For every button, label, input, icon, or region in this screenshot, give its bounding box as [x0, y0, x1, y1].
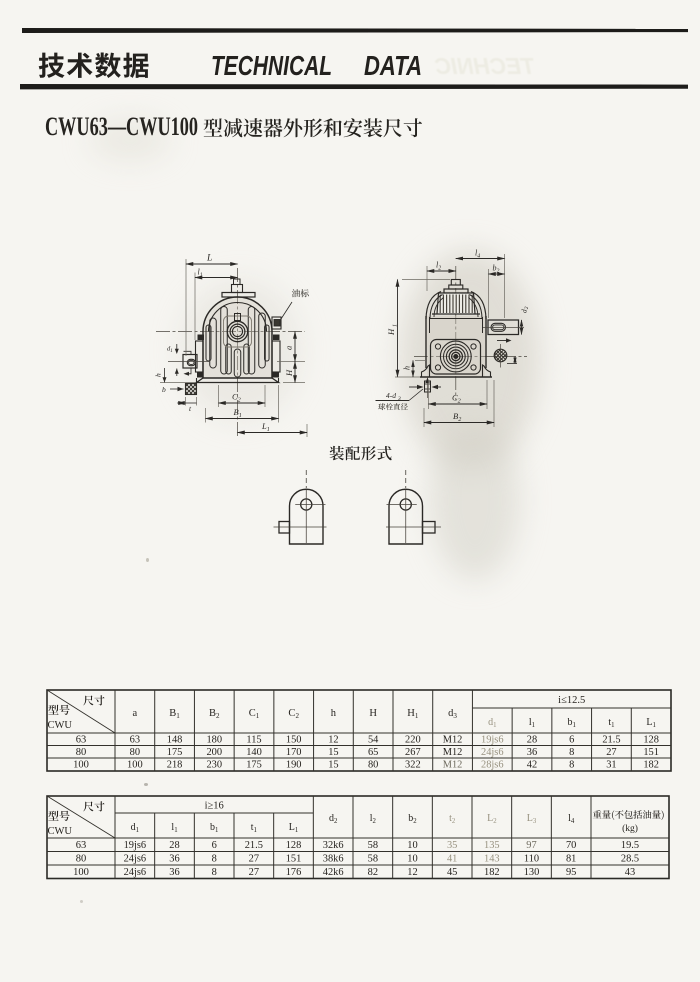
- svg-text:3: 3: [397, 396, 401, 402]
- svg-text:B2: B2: [453, 411, 461, 423]
- svg-text:1: 1: [393, 324, 399, 327]
- svg-text:100: 100: [73, 867, 89, 878]
- svg-text:54: 54: [368, 735, 379, 746]
- svg-text:230: 230: [206, 760, 222, 771]
- svg-text:182: 182: [643, 760, 659, 771]
- svg-text:28js6: 28js6: [481, 760, 504, 771]
- svg-text:148: 148: [167, 735, 183, 746]
- svg-text:151: 151: [643, 747, 659, 758]
- svg-text:h: h: [331, 708, 337, 719]
- svg-text:6: 6: [569, 735, 574, 746]
- svg-text:36: 36: [527, 747, 537, 758]
- svg-text:267: 267: [405, 747, 421, 758]
- svg-text:97: 97: [526, 840, 536, 851]
- svg-text:36: 36: [169, 867, 179, 878]
- svg-text:80: 80: [76, 747, 87, 758]
- svg-text:19js6: 19js6: [124, 840, 147, 851]
- svg-text:24js6: 24js6: [124, 854, 147, 865]
- svg-text:d2: d2: [329, 813, 338, 825]
- svg-text:35: 35: [447, 840, 457, 851]
- svg-text:C2: C2: [288, 708, 299, 720]
- svg-text:19js6: 19js6: [481, 735, 504, 746]
- svg-text:140: 140: [246, 747, 262, 758]
- svg-text:a: a: [133, 708, 138, 719]
- svg-text:M12: M12: [443, 735, 463, 746]
- svg-text:4-d: 4-d: [386, 391, 396, 400]
- svg-text:L1: L1: [646, 717, 656, 729]
- svg-text:82: 82: [368, 867, 378, 878]
- svg-text:H1: H1: [407, 708, 419, 720]
- svg-text:8: 8: [212, 867, 217, 878]
- svg-text:63: 63: [76, 735, 87, 746]
- svg-text:28: 28: [527, 735, 537, 746]
- svg-text:i≥16: i≥16: [205, 801, 224, 812]
- svg-text:190: 190: [286, 760, 302, 771]
- svg-text:12: 12: [407, 867, 417, 878]
- svg-text:21.5: 21.5: [245, 840, 263, 851]
- svg-text:L1: L1: [289, 822, 299, 834]
- svg-text:32k6: 32k6: [323, 840, 344, 851]
- svg-text:110: 110: [524, 854, 539, 865]
- svg-text:H: H: [386, 328, 396, 336]
- svg-text:220: 220: [405, 735, 421, 746]
- svg-text:10: 10: [407, 854, 417, 865]
- svg-text:l4: l4: [568, 813, 575, 825]
- svg-text:L1: L1: [261, 421, 270, 433]
- svg-text:38k6: 38k6: [323, 854, 344, 865]
- svg-text:b: b: [162, 385, 166, 394]
- svg-text:l1: l1: [171, 822, 177, 834]
- svg-text:143: 143: [484, 854, 500, 865]
- svg-text:H: H: [284, 369, 294, 377]
- svg-text:322: 322: [405, 760, 421, 771]
- svg-text:t2: t2: [449, 813, 456, 825]
- svg-text:19.5: 19.5: [621, 840, 639, 851]
- svg-text:42k6: 42k6: [323, 867, 344, 878]
- svg-text:24js6: 24js6: [481, 747, 504, 758]
- svg-text:l4: l4: [475, 249, 480, 260]
- svg-text:21.5: 21.5: [602, 735, 620, 746]
- svg-text:65: 65: [368, 747, 378, 758]
- svg-text:28.5: 28.5: [621, 854, 639, 865]
- svg-text:10: 10: [407, 840, 417, 851]
- svg-text:t: t: [189, 404, 192, 413]
- svg-text:b1: b1: [210, 822, 218, 834]
- svg-text:45: 45: [447, 867, 457, 878]
- svg-text:a: a: [284, 346, 294, 350]
- svg-text:80: 80: [130, 747, 140, 758]
- svg-text:80: 80: [76, 854, 87, 865]
- svg-text:L3: L3: [527, 813, 537, 825]
- svg-text:b1: b1: [568, 717, 576, 729]
- svg-text:130: 130: [524, 867, 540, 878]
- svg-text:B1: B1: [169, 708, 180, 720]
- svg-text:176: 176: [286, 867, 302, 878]
- svg-text:27: 27: [249, 854, 259, 865]
- svg-text:d1: d1: [488, 717, 496, 729]
- svg-text:M12: M12: [443, 747, 463, 758]
- svg-text:i≤12.5: i≤12.5: [558, 695, 585, 706]
- svg-text:8: 8: [212, 854, 217, 865]
- svg-text:M12: M12: [443, 760, 463, 771]
- svg-text:27: 27: [249, 867, 259, 878]
- svg-text:6: 6: [212, 840, 217, 851]
- svg-text:58: 58: [368, 840, 378, 851]
- svg-text:b2: b2: [408, 813, 417, 825]
- svg-text:95: 95: [566, 867, 576, 878]
- svg-text:TECHNICAL: TECHNICAL: [211, 50, 332, 81]
- svg-text:(kg): (kg): [622, 823, 638, 834]
- svg-text:h: h: [154, 373, 163, 377]
- svg-text:TECHNIC: TECHNIC: [435, 53, 535, 79]
- svg-text:L: L: [206, 254, 212, 264]
- svg-text:175: 175: [167, 747, 183, 758]
- svg-text:151: 151: [286, 854, 302, 865]
- svg-text:L2: L2: [487, 813, 497, 825]
- svg-text:100: 100: [73, 760, 89, 771]
- svg-text:12: 12: [328, 735, 338, 746]
- svg-text:d1: d1: [131, 822, 139, 834]
- svg-text:80: 80: [368, 760, 378, 771]
- svg-text:100: 100: [127, 760, 143, 771]
- svg-text:CWU: CWU: [48, 720, 73, 731]
- svg-text:31: 31: [606, 760, 616, 771]
- svg-text:180: 180: [206, 735, 222, 746]
- svg-text:27: 27: [606, 747, 616, 758]
- svg-text:182: 182: [484, 867, 500, 878]
- svg-text:d2: d2: [520, 306, 531, 313]
- svg-text:63: 63: [130, 735, 140, 746]
- svg-text:81: 81: [566, 854, 576, 865]
- svg-text:70: 70: [566, 840, 576, 851]
- svg-text:175: 175: [246, 760, 262, 771]
- svg-text:CWU: CWU: [48, 826, 73, 837]
- svg-text:170: 170: [286, 747, 302, 758]
- svg-text:C2: C2: [232, 392, 241, 404]
- svg-text:41: 41: [447, 854, 457, 865]
- svg-text:8: 8: [569, 747, 574, 758]
- svg-text:42: 42: [527, 760, 537, 771]
- svg-text:150: 150: [286, 735, 302, 746]
- svg-text:24js6: 24js6: [124, 867, 147, 878]
- svg-text:d1: d1: [167, 346, 173, 354]
- svg-text:l1: l1: [198, 268, 203, 279]
- svg-text:135: 135: [484, 840, 500, 851]
- svg-text:128: 128: [286, 840, 302, 851]
- svg-text:115: 115: [246, 735, 261, 746]
- svg-text:128: 128: [643, 735, 659, 746]
- svg-text:DATA: DATA: [364, 50, 422, 81]
- svg-text:b2: b2: [493, 264, 500, 275]
- svg-text:l2: l2: [436, 261, 441, 272]
- svg-text:8: 8: [569, 760, 574, 771]
- svg-text:l2: l2: [370, 813, 377, 825]
- svg-text:15: 15: [328, 760, 338, 771]
- svg-text:C2: C2: [452, 393, 461, 405]
- svg-text:l1: l1: [529, 717, 535, 729]
- svg-text:28: 28: [169, 840, 179, 851]
- svg-text:58: 58: [368, 854, 378, 865]
- svg-text:15: 15: [328, 747, 338, 758]
- svg-text:43: 43: [625, 867, 635, 878]
- svg-text:B2: B2: [209, 708, 220, 720]
- svg-text:h: h: [403, 366, 412, 370]
- svg-text:t1: t1: [608, 717, 614, 729]
- svg-text:200: 200: [206, 747, 222, 758]
- svg-text:t1: t1: [251, 822, 257, 834]
- svg-text:d3: d3: [448, 708, 457, 720]
- svg-text:C1: C1: [249, 708, 260, 720]
- svg-text:63: 63: [76, 840, 87, 851]
- svg-text:36: 36: [169, 854, 179, 865]
- svg-text:218: 218: [167, 760, 183, 771]
- svg-text:H: H: [369, 708, 377, 719]
- svg-text:CWU63—CWU100: CWU63—CWU100: [45, 112, 198, 141]
